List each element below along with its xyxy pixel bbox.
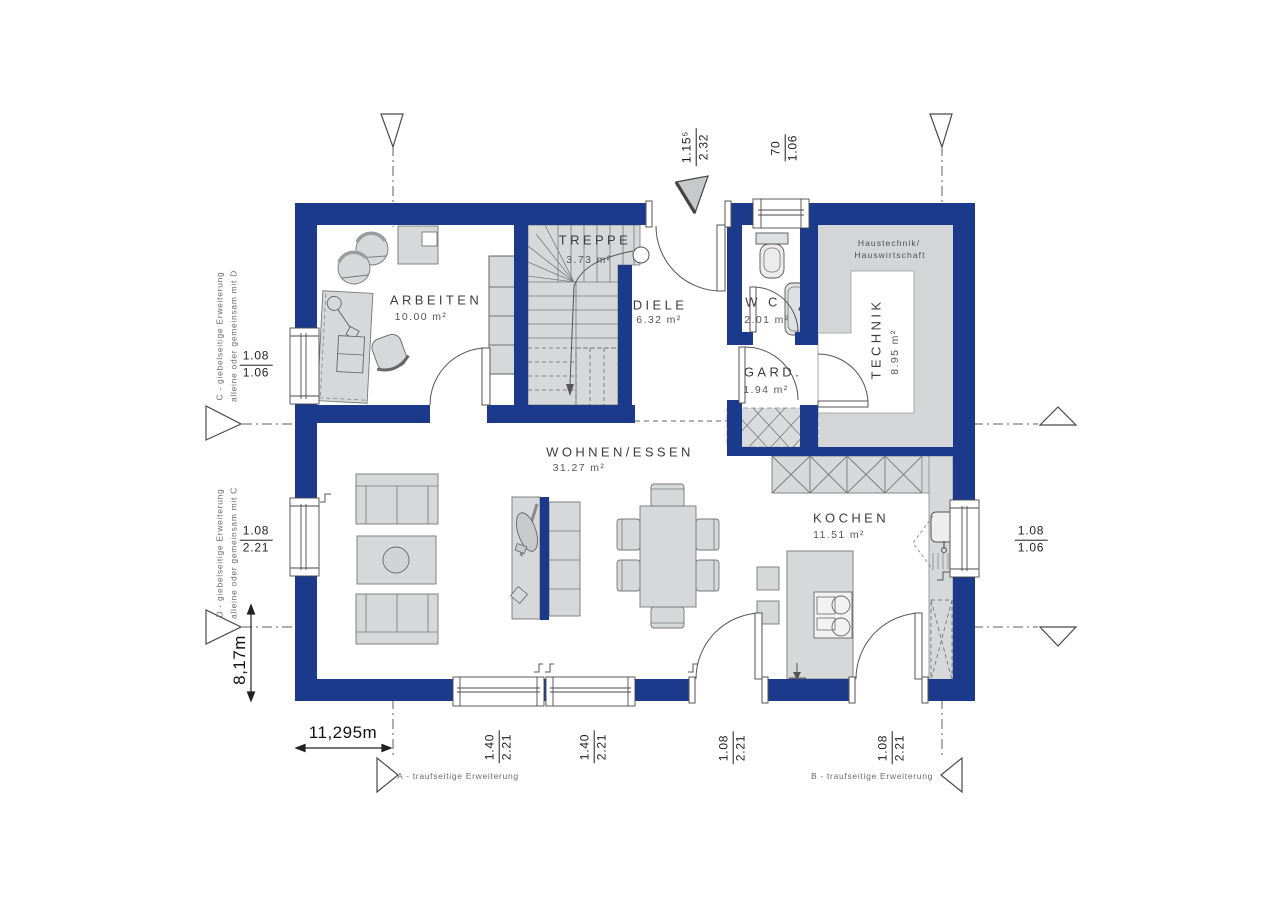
room-area-gard: 1.94 m² [743,384,788,396]
extension-label-c: C - giebelseitige Erweiterung alleine od… [213,270,242,402]
door-arbeiten [430,348,490,405]
room-label-gard: GARD. [744,365,802,380]
dimension-terrace-window-2: 1.40 2.21 [579,731,610,764]
extension-label-d: D - giebelseitige Erweiterung alleine od… [213,487,242,619]
dimension-terrace-door-2: 1.08 2.21 [877,732,908,765]
extension-label-a: A - traufseitige Erweiterung [397,769,519,783]
dimension-wohnen-side-window: 1.08 2.21 [240,525,273,556]
tv-sideboard [511,497,542,619]
dimension-kochen-window: 1.08 1.06 [1015,525,1048,556]
window-terrace-1 [453,677,544,706]
window-wohnen-side [290,498,319,576]
room-label-technik: TECHNIK [869,299,884,380]
dimension-terrace-window-1: 1.40 2.21 [484,731,515,764]
window-kochen [950,500,979,577]
dimension-arbeiten-window: 1.08 1.06 [240,350,273,381]
coffee-table [357,536,436,584]
room-label-treppe: TREPPE [559,233,631,248]
room-area-wc: 2.01 m² [744,314,789,326]
desk [317,291,373,403]
arbeiten-lounge-chairs [338,233,388,284]
arbeiten-side-table [398,226,438,264]
dimension-entrance-door: 1.15⁵ 2.32 [681,128,712,166]
window-arbeiten [290,328,319,404]
office-chair [368,331,411,374]
room-label-wohnen: WOHNEN/ESSEN [546,445,694,460]
sofa-bottom [356,594,438,644]
room-label-diele: DIELE [633,298,688,313]
kitchen-island [787,551,853,680]
dining-set [617,484,719,628]
window-terrace-2 [546,677,635,706]
technik-note-line2: Hauswirtschaft [854,250,925,260]
bookshelf [489,256,515,374]
floor-plan-page: ARBEITEN 10.00 m² TREPPE 3.73 m² DIELE 6… [0,0,1280,905]
room-label-arbeiten: ARBEITEN [390,293,482,308]
kitchen-tall-cabinets [772,456,922,493]
toilet [756,233,788,278]
room-area-arbeiten: 10.00 m² [395,311,448,323]
room-label-wc: W C [745,295,780,310]
room-area-wohnen: 31.27 m² [553,462,606,474]
technik-note-line1: Haustechnik/ [858,238,920,248]
room-area-treppe: 3.73 m² [566,254,611,266]
room-area-diele: 6.32 m² [636,314,681,326]
bench-cushions [549,502,580,616]
extension-label-b: B - traufseitige Erweiterung [811,769,933,783]
sofa-top [356,474,438,524]
room-label-kochen: KOCHEN [813,511,889,526]
kitchen-counter [922,456,953,683]
overall-width-arrow [296,745,391,752]
overall-width-label: 11,295m [309,723,377,743]
dimension-wc-window: 70 1.06 [770,135,801,162]
overall-height-label: 8,17m [230,635,250,685]
room-area-kochen: 11.51 m² [813,529,865,541]
window-wc [753,199,809,228]
room-area-technik: 8.95 m² [889,329,901,374]
dimension-terrace-door-1: 1.08 2.21 [718,732,749,765]
